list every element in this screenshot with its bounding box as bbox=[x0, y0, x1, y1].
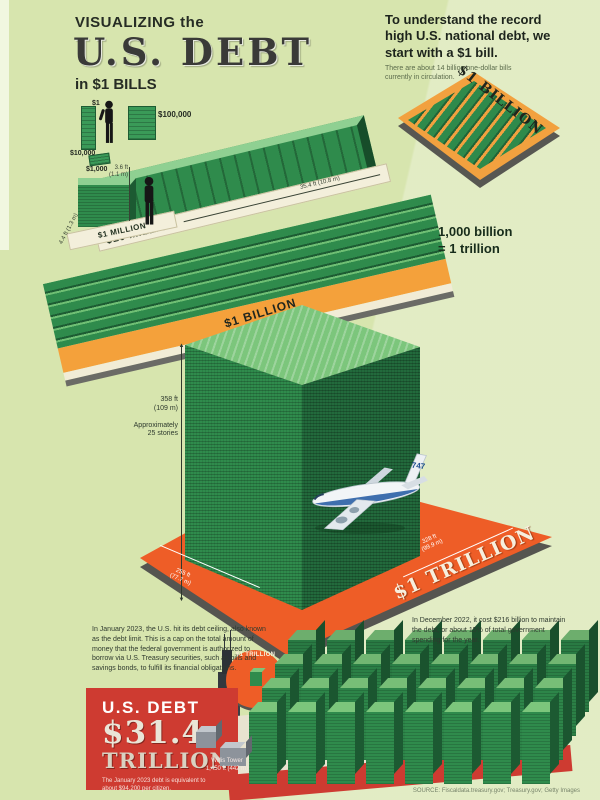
infographic-page: VISUALIZING the U.S. DEBT in $1 BILLS To… bbox=[0, 0, 600, 800]
trillion-mini-cube bbox=[483, 712, 511, 784]
willis-tower-label: Willis Tower1,450 ft (442 m) bbox=[192, 758, 262, 774]
debt-ceiling-note: In January 2023, the U.S. hit its debt c… bbox=[92, 625, 270, 674]
trillion-mini-cube bbox=[366, 712, 394, 784]
stack-height-line bbox=[129, 167, 130, 221]
title-kicker: VISUALIZING the bbox=[75, 14, 204, 31]
cube-height-line: ▲▼ bbox=[181, 347, 182, 599]
trillion-cube-stack bbox=[242, 636, 578, 796]
page-edge-highlight bbox=[0, 0, 9, 250]
trillion-mini-cube bbox=[405, 712, 433, 784]
intro-note-text: There are about 14 billion one-dollar bi… bbox=[385, 64, 535, 82]
trillion-mini-cube bbox=[288, 712, 316, 784]
gray-cube-icon bbox=[196, 732, 216, 748]
person-icon bbox=[99, 100, 119, 146]
debt-cost-note: In December 2022, it cost $216 billion t… bbox=[412, 616, 570, 645]
hundred-thousand-label: $100,000 bbox=[158, 110, 191, 119]
trillion-mini-cube bbox=[444, 712, 472, 784]
trillion-mini-cube bbox=[522, 712, 550, 784]
ten-thousand-label: $10,000 bbox=[70, 150, 95, 157]
cube-height-label: 358 ft(109 m) Approximately25 stories bbox=[126, 396, 178, 439]
one-thousand-label: $1,000 bbox=[86, 166, 107, 173]
plane-747-text: 747 bbox=[411, 461, 426, 471]
ten-thousand-stack bbox=[81, 106, 96, 150]
per-citizen-note: The January 2023 debt is equivalent to a… bbox=[102, 777, 222, 793]
trillion-equation: 1,000 billion= 1 trillion bbox=[438, 224, 568, 258]
source-credit: SOURCE: Fiscaldata.treasury.gov; Treasur… bbox=[330, 788, 580, 794]
hundred-thousand-block bbox=[128, 106, 156, 140]
intro-lead-text: To understand the record high U.S. natio… bbox=[385, 12, 570, 61]
stack-height-measurement: 3.6 ft(1.1 m) bbox=[106, 165, 128, 179]
dollar-bill-label: $1 bbox=[92, 100, 100, 107]
boeing-747-icon: 747 bbox=[298, 448, 438, 538]
title-subtitle: in $1 BILLS bbox=[75, 76, 157, 93]
trillion-mini-cube bbox=[327, 712, 355, 784]
person-icon bbox=[138, 176, 160, 228]
page-title: U.S. DEBT bbox=[73, 30, 312, 74]
